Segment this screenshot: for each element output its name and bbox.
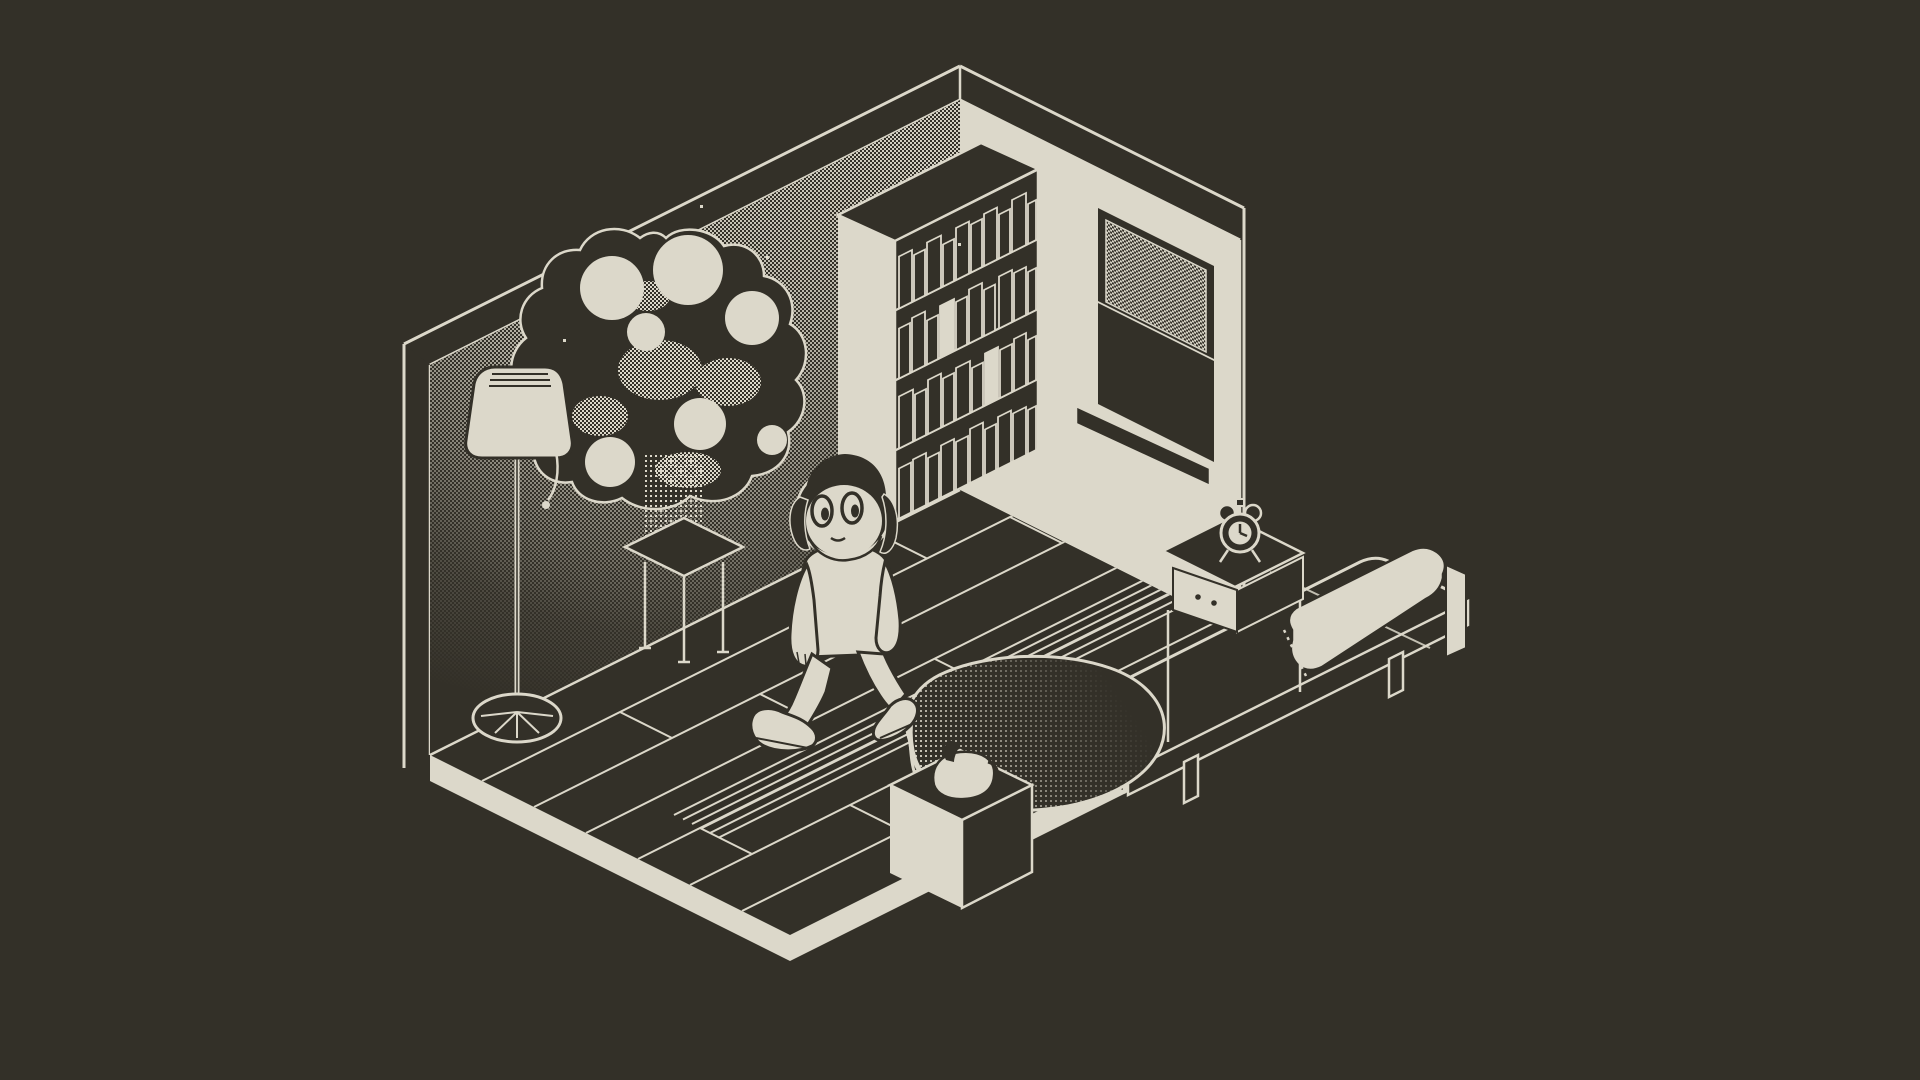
- clock-button: [1236, 499, 1244, 506]
- pupil: [851, 505, 859, 518]
- drawer-handle[interactable]: [1195, 594, 1201, 600]
- headboard: [1446, 565, 1466, 657]
- scene-canvas: [0, 0, 1920, 1080]
- drawer-handle[interactable]: [1211, 600, 1217, 606]
- bed-leg: [1184, 755, 1198, 803]
- lamp-cord-pull[interactable]: [542, 501, 550, 509]
- bed-leg: [1389, 652, 1403, 697]
- pupil: [821, 508, 829, 521]
- game-screen: [0, 0, 1920, 1080]
